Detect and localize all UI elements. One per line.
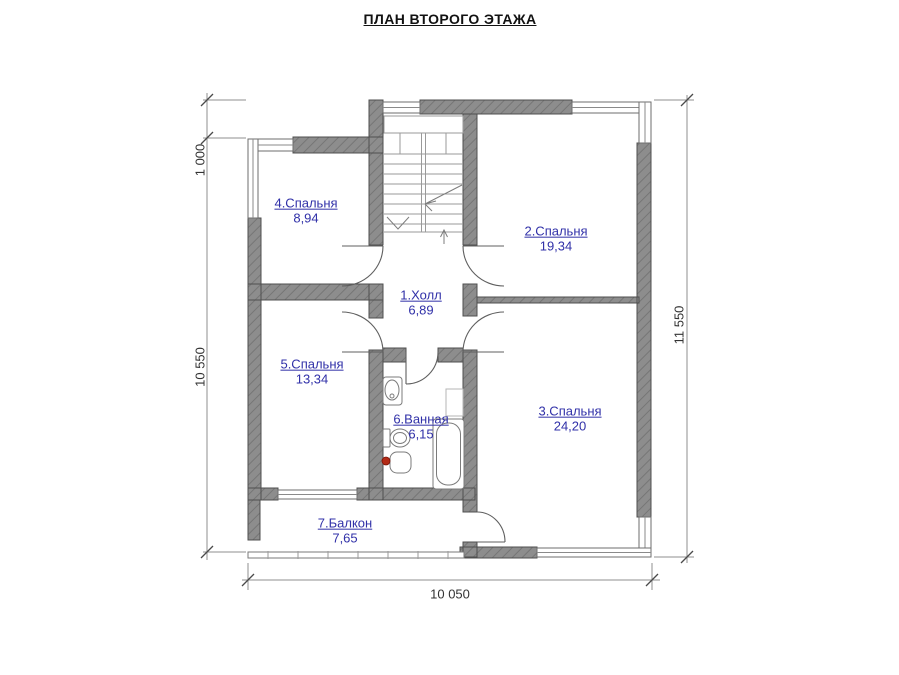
stair-landing-upper — [384, 116, 463, 133]
room-name: 7.Балкон — [318, 516, 372, 531]
toilet-tank — [383, 429, 390, 447]
stair-landing — [400, 133, 446, 154]
door-bedroom4 — [342, 246, 383, 286]
floorplan-page: ПЛАН ВТОРОГО ЭТАЖА — [0, 0, 899, 675]
railing-bar — [248, 552, 464, 558]
stair-down-arrow — [387, 217, 409, 229]
door-balcony — [477, 512, 505, 542]
sink-drain — [390, 394, 394, 398]
room-label-bedroom-4: 4.Спальня 8,94 — [274, 196, 337, 227]
dim-ticks — [201, 94, 693, 586]
dim-label-left-total: 10 550 — [193, 347, 208, 387]
room-label-bedroom-5: 5.Спальня 13,34 — [280, 357, 343, 388]
room-area: 6,89 — [400, 303, 441, 318]
room-label-balcony: 7.Балкон 7,65 — [318, 516, 372, 547]
room-name: 4.Спальня — [274, 196, 337, 211]
stair-up-arrow — [425, 185, 462, 211]
room-area: 13,34 — [280, 372, 343, 387]
floorplan-drawing — [0, 0, 899, 675]
stair-stringer — [422, 133, 426, 232]
door-bathroom — [406, 352, 438, 384]
room-label-bathroom: 6.Ванная 6,15 — [393, 412, 448, 443]
dim-label-bottom-total: 10 050 — [430, 587, 470, 602]
room-label-bedroom-2: 2.Спальня 19,34 — [524, 224, 587, 255]
room-area: 8,94 — [274, 211, 337, 226]
room-label-hall: 1.Холл 6,89 — [400, 288, 441, 319]
room-area: 6,15 — [393, 427, 448, 442]
room-name: 5.Спальня — [280, 357, 343, 372]
stair-treads — [384, 154, 463, 232]
dim-label-left-offset: 1 000 — [193, 144, 208, 177]
room-name: 6.Ванная — [393, 412, 448, 427]
riser-marker — [382, 457, 390, 465]
dim-label-right-total: 11 550 — [672, 306, 687, 345]
bidet — [390, 452, 411, 473]
dimension-lines — [201, 93, 694, 590]
room-name: 1.Холл — [400, 288, 441, 303]
room-label-bedroom-3: 3.Спальня 24,20 — [538, 404, 601, 435]
balcony-railing — [248, 551, 464, 559]
dim-line-left — [203, 93, 246, 560]
room-area: 7,65 — [318, 531, 372, 546]
door-bedroom3 — [463, 312, 504, 352]
room-name: 2.Спальня — [524, 224, 587, 239]
door-bedroom2 — [463, 246, 504, 286]
room-area: 24,20 — [538, 419, 601, 434]
room-area: 19,34 — [524, 239, 587, 254]
room-name: 3.Спальня — [538, 404, 601, 419]
staircase — [384, 116, 463, 244]
